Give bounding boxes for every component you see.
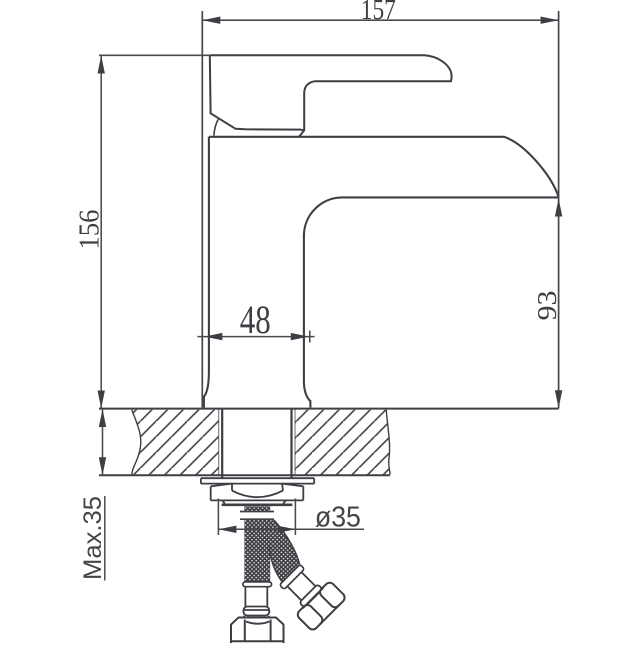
svg-text:157: 157: [361, 0, 396, 26]
svg-text:ø35: ø35: [315, 502, 361, 534]
svg-text:93: 93: [532, 291, 562, 321]
svg-text:Max.35: Max.35: [79, 496, 107, 580]
svg-text:156: 156: [75, 210, 106, 250]
svg-text:48: 48: [240, 297, 271, 342]
